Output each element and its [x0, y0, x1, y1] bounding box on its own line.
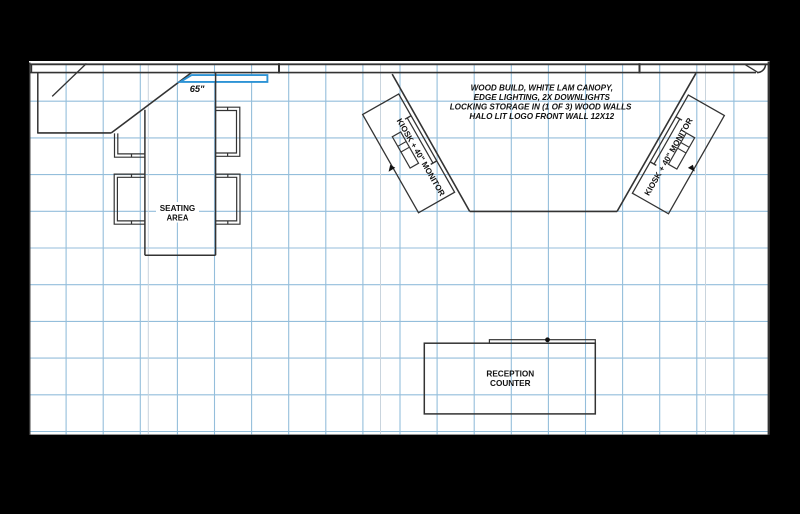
svg-text:AREA: AREA	[167, 212, 189, 222]
svg-text:COUNTER: COUNTER	[490, 379, 531, 388]
svg-text:HALO LIT LOGO FRONT WALL 12X12: HALO LIT LOGO FRONT WALL 12X12	[469, 112, 614, 121]
svg-text:65": 65"	[190, 84, 205, 94]
svg-text:RECEPTION: RECEPTION	[486, 369, 534, 378]
svg-text:LOCKING STORAGE IN (1 OF 3) WO: LOCKING STORAGE IN (1 OF 3) WOOD WALLS	[450, 103, 632, 112]
svg-text:EDGE LIGHTING, 2X DOWNLIGHTS: EDGE LIGHTING, 2X DOWNLIGHTS	[474, 93, 611, 102]
svg-text:WOOD BUILD, WHITE LAM CANOPY,: WOOD BUILD, WHITE LAM CANOPY,	[471, 83, 613, 92]
